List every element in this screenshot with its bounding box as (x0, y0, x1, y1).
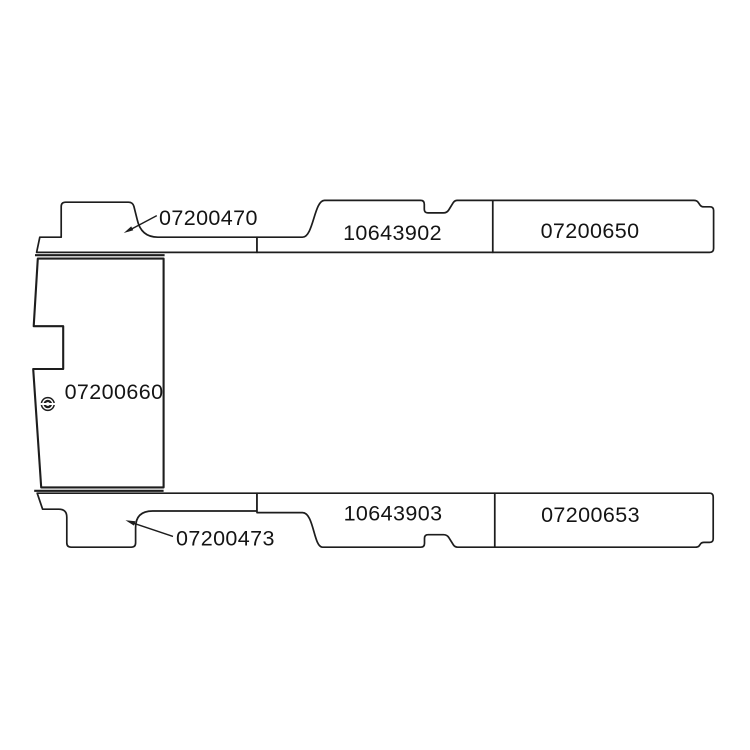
fastener-icon (41, 398, 55, 411)
panel-floor-main (33, 259, 163, 488)
callout-bottom-left: 07200473 (126, 520, 275, 550)
part-label-top-right: 07200650 (541, 219, 640, 243)
part-label-bottom-left: 07200473 (176, 527, 275, 551)
part-label-bottom-middle: 10643903 (344, 502, 443, 526)
part-label-top-left: 07200470 (159, 206, 258, 230)
callout-top-left: 07200470 (124, 206, 258, 233)
diagram-canvas: 07200470 07200473 10643902 07200650 0720… (0, 0, 750, 750)
diagram-page: 07200470 07200473 10643902 07200650 0720… (0, 0, 750, 750)
part-label-bottom-right: 07200653 (541, 503, 640, 527)
part-label-top-middle: 10643902 (343, 221, 442, 245)
part-label-floor-main: 07200660 (65, 380, 164, 404)
